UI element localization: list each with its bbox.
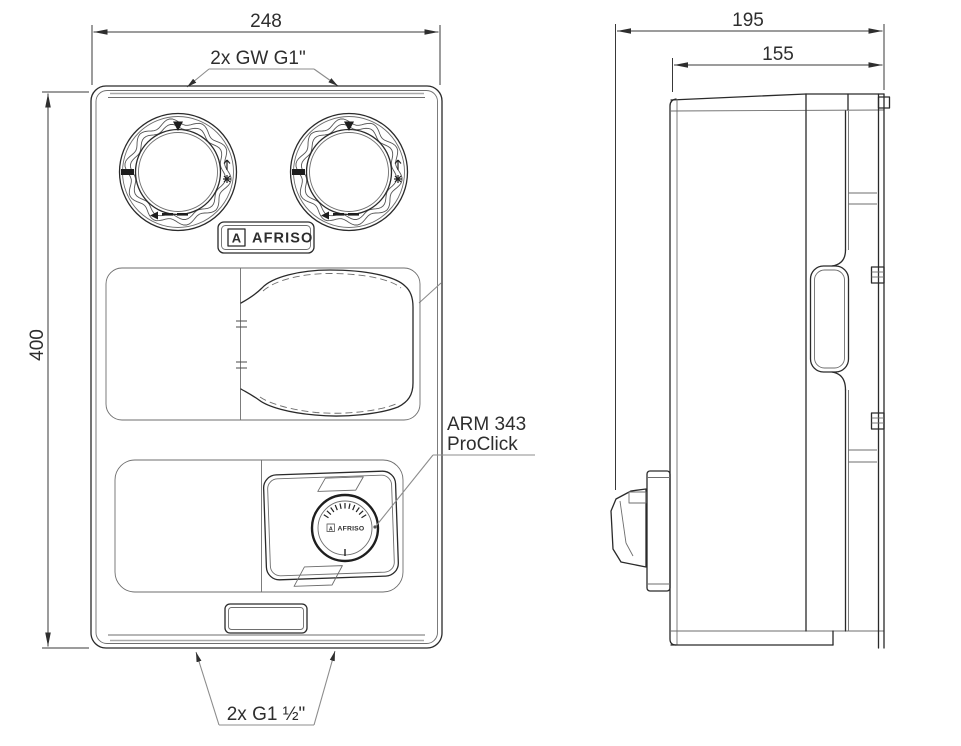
side-body-shell [670, 94, 884, 645]
top-connections-label: 2x GW G1" [187, 48, 338, 87]
bracket-clip-upper [872, 267, 885, 283]
handle-recess [811, 111, 878, 631]
bottom-connections-text: 2x G1 ½" [227, 704, 306, 725]
technical-drawing-page: 248 400 2x GW G1" [0, 0, 961, 746]
bottom-connections-label: 2x G1 ½" [196, 651, 335, 725]
bracket-bars [848, 193, 877, 462]
thermometer-dial-left [120, 114, 237, 231]
housing-bottom-tab [293, 566, 343, 587]
dial-left-tick [121, 169, 134, 175]
depth-dimension-housing: 155 [673, 44, 883, 92]
actuator-side-profile [611, 471, 670, 591]
actuator-callout-line2: ProClick [447, 434, 518, 455]
divider-hash-marks [236, 321, 247, 368]
callout-endpoint-dot [373, 525, 376, 528]
pump-cutout [241, 270, 413, 416]
depth-total-value: 195 [732, 10, 764, 31]
depth-dimension-total: 195 [616, 10, 885, 490]
thermometer-dial-right [291, 114, 408, 231]
actuator-side-step [629, 492, 646, 503]
nameplate [225, 604, 307, 633]
badge-letter: A [232, 231, 242, 246]
height-dimension: 400 [27, 92, 89, 648]
dial-open-icon [223, 160, 231, 183]
height-dimension-value: 400 [27, 329, 48, 361]
pump-insulation-panel [106, 268, 420, 420]
dial-open-icon [394, 160, 402, 183]
dial-knurl-outer [125, 119, 231, 225]
knob-letter: A [329, 526, 333, 532]
width-dimension-value: 248 [250, 11, 282, 32]
actuator-callout: ARM 343 ProClick [373, 414, 535, 529]
wall-bracket-plate [872, 94, 890, 648]
depth-housing-value: 155 [762, 44, 794, 65]
brand-badge: A AFRISO [218, 222, 314, 253]
dial-left-tick [292, 169, 305, 175]
pump-group-dimension-drawing: 248 400 2x GW G1" [0, 0, 961, 746]
knob-brand-text: AFRISO [338, 526, 365, 533]
badge-brand-text: AFRISO [252, 231, 313, 247]
side-view: 195 155 [611, 10, 890, 648]
actuator-knob: A AFRISO [312, 495, 378, 561]
dial-knurl-outer [296, 119, 402, 225]
top-connections-text: 2x GW G1" [210, 48, 305, 69]
housing-top-tab [317, 477, 363, 492]
front-view: 248 400 2x GW G1" [27, 11, 535, 725]
actuator-callout-line1: ARM 343 [447, 414, 526, 435]
mixer-panel: A AFRISO [115, 460, 403, 592]
bracket-clip-lower [872, 413, 885, 429]
